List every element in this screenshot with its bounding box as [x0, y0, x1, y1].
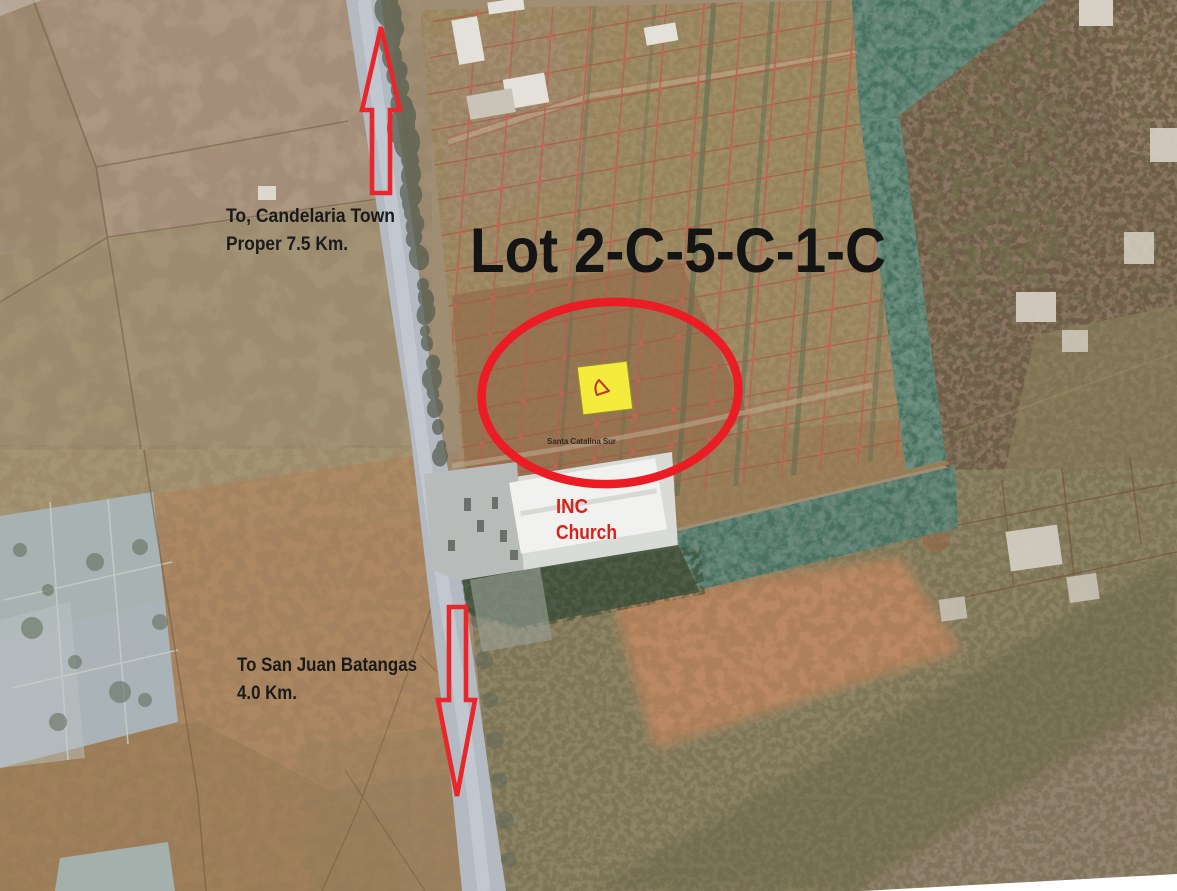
svg-text:INC: INC: [556, 496, 588, 518]
svg-text:Lot 2-C-5-C-1-C: Lot 2-C-5-C-1-C: [470, 216, 886, 286]
svg-text:Santa Catalina Sur: Santa Catalina Sur: [547, 437, 616, 446]
svg-text:Church: Church: [556, 522, 617, 544]
svg-text:4.0 Km.: 4.0 Km.: [237, 682, 297, 704]
svg-text:Proper 7.5 Km.: Proper 7.5 Km.: [226, 233, 348, 255]
svg-text:To, Candelaria Town: To, Candelaria Town: [226, 205, 395, 227]
svg-text:To San Juan Batangas: To San Juan Batangas: [237, 654, 417, 676]
